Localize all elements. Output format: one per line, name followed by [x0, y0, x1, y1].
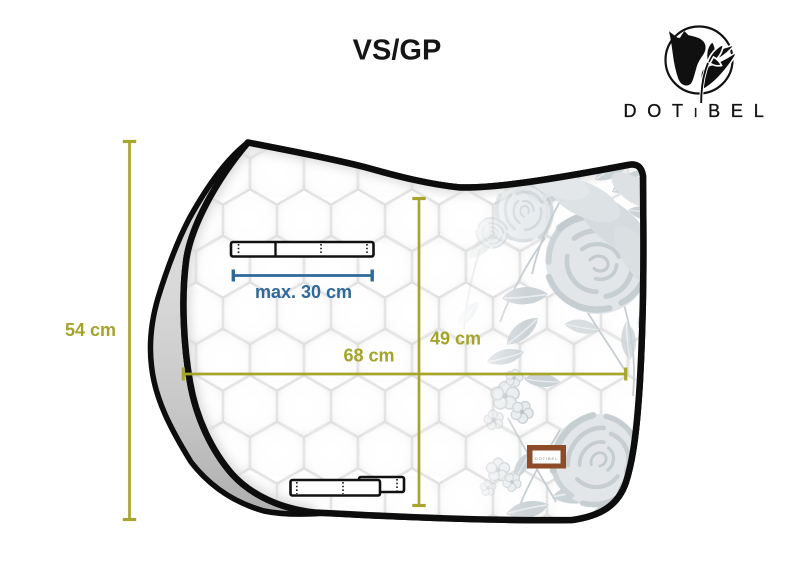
svg-text:DOTIBEL: DOTIBEL — [535, 456, 558, 461]
svg-text:49 cm: 49 cm — [430, 329, 481, 349]
svg-text:68 cm: 68 cm — [343, 346, 394, 366]
svg-text:54 cm: 54 cm — [65, 320, 116, 340]
svg-text:VS/GP: VS/GP — [353, 35, 442, 67]
svg-text:max. 30 cm: max. 30 cm — [255, 282, 352, 302]
